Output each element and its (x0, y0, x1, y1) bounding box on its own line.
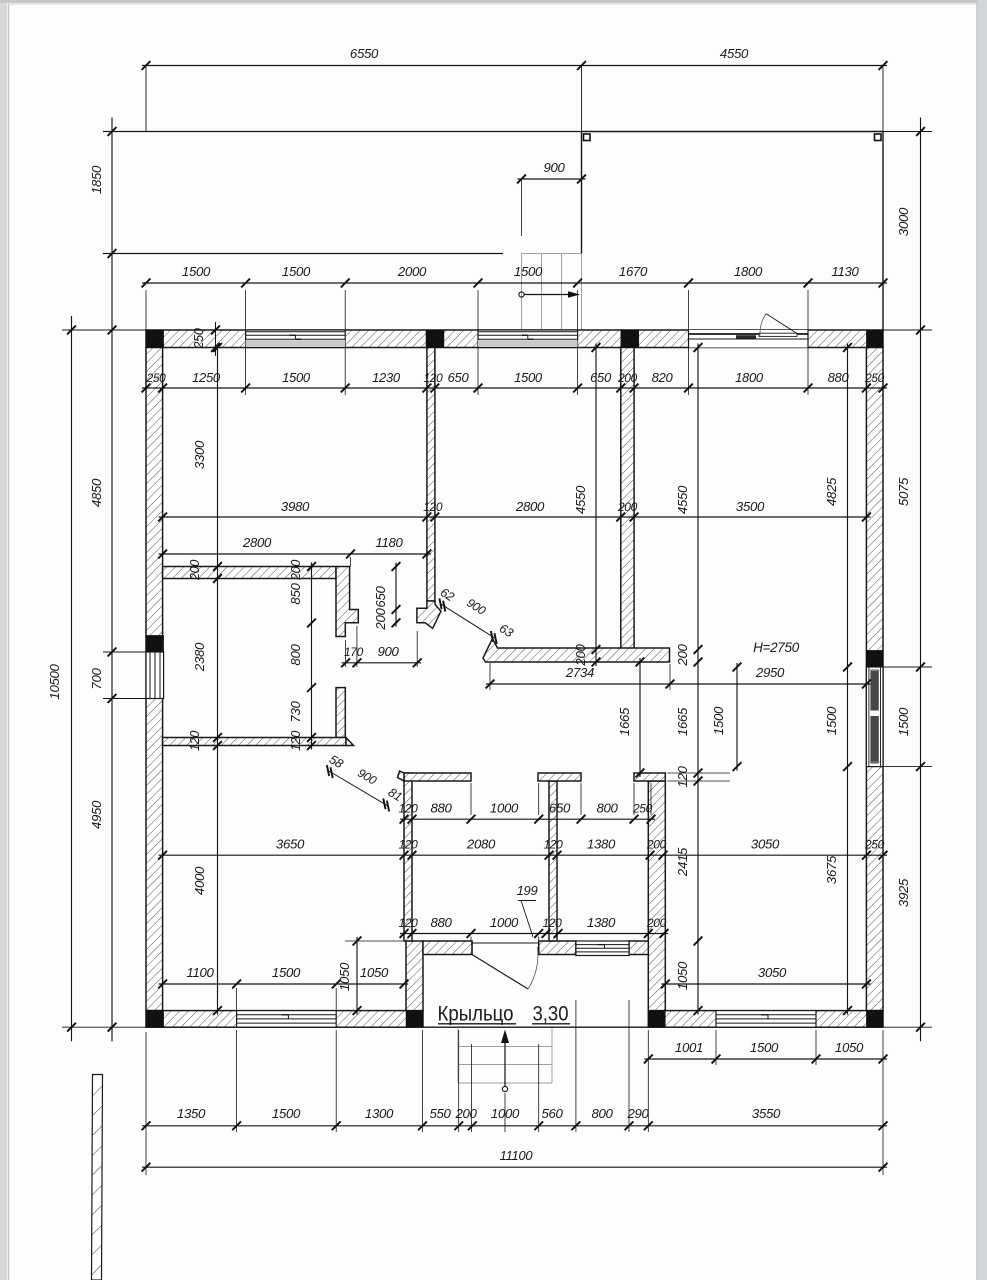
svg-text:4000: 4000 (192, 866, 207, 895)
svg-text:1500: 1500 (272, 1106, 301, 1121)
svg-text:1300: 1300 (365, 1106, 394, 1121)
svg-text:880: 880 (430, 915, 452, 930)
svg-text:Крыльцо: Крыльцо (438, 1002, 514, 1026)
svg-text:120: 120 (289, 731, 303, 751)
svg-text:2734: 2734 (565, 665, 594, 680)
svg-text:200: 200 (188, 560, 202, 581)
svg-text:250: 250 (864, 838, 885, 852)
svg-text:800: 800 (288, 643, 303, 665)
svg-text:650: 650 (373, 585, 388, 607)
svg-text:1665: 1665 (617, 707, 632, 736)
svg-text:550: 550 (429, 1106, 451, 1121)
svg-text:2415: 2415 (675, 847, 690, 877)
svg-text:1001: 1001 (675, 1040, 703, 1055)
svg-text:1250: 1250 (192, 370, 221, 385)
svg-text:1050: 1050 (835, 1040, 864, 1055)
svg-text:700: 700 (89, 667, 104, 689)
svg-text:3050: 3050 (758, 965, 787, 980)
svg-text:1050: 1050 (337, 962, 352, 991)
svg-text:1050: 1050 (360, 965, 389, 980)
svg-text:3980: 3980 (281, 499, 310, 514)
svg-text:3300: 3300 (192, 440, 207, 469)
svg-text:900: 900 (377, 644, 399, 659)
svg-text:1380: 1380 (587, 915, 616, 930)
svg-text:3,30: 3,30 (533, 1002, 569, 1026)
svg-text:200: 200 (675, 643, 690, 666)
svg-text:3925: 3925 (896, 878, 911, 907)
svg-text:1050: 1050 (675, 961, 690, 990)
svg-text:4950: 4950 (89, 800, 104, 829)
svg-text:900: 900 (543, 160, 565, 175)
svg-text:1500: 1500 (282, 264, 311, 279)
svg-text:1500: 1500 (750, 1040, 779, 1055)
svg-text:1130: 1130 (831, 264, 859, 279)
svg-text:800: 800 (596, 801, 618, 816)
svg-text:1380: 1380 (587, 837, 616, 852)
svg-text:4850: 4850 (89, 478, 104, 507)
svg-text:3675: 3675 (824, 855, 839, 884)
svg-text:H=2750: H=2750 (753, 640, 800, 655)
svg-text:880: 880 (828, 370, 850, 385)
svg-text:2380: 2380 (192, 642, 207, 672)
svg-text:1500: 1500 (182, 264, 211, 279)
svg-text:250: 250 (192, 328, 206, 349)
svg-text:5075: 5075 (896, 477, 911, 506)
svg-text:120: 120 (675, 765, 690, 787)
svg-text:11100: 11100 (500, 1148, 534, 1163)
svg-text:200: 200 (289, 560, 303, 581)
svg-text:650: 650 (590, 370, 612, 385)
svg-text:200: 200 (573, 643, 588, 666)
svg-text:730: 730 (288, 700, 303, 722)
svg-text:1670: 1670 (619, 264, 648, 279)
svg-text:120: 120 (188, 731, 202, 751)
svg-text:1500: 1500 (896, 707, 911, 736)
svg-text:200: 200 (646, 838, 667, 852)
svg-text:1180: 1180 (375, 535, 403, 550)
svg-text:4550: 4550 (573, 485, 588, 514)
svg-text:560: 560 (541, 1106, 563, 1121)
svg-text:800: 800 (591, 1106, 613, 1121)
svg-text:4550: 4550 (720, 46, 749, 61)
svg-text:1500: 1500 (272, 965, 301, 980)
svg-text:2800: 2800 (242, 535, 272, 550)
svg-text:10500: 10500 (47, 663, 62, 699)
svg-text:1350: 1350 (177, 1106, 206, 1121)
svg-text:3000: 3000 (896, 207, 911, 236)
svg-text:1800: 1800 (735, 370, 764, 385)
svg-text:650: 650 (549, 801, 571, 816)
svg-text:200: 200 (617, 500, 638, 514)
svg-text:120: 120 (398, 802, 418, 816)
svg-text:1500: 1500 (711, 706, 726, 735)
svg-text:4825: 4825 (824, 477, 839, 506)
svg-text:650: 650 (448, 370, 470, 385)
svg-text:1000: 1000 (490, 915, 519, 930)
svg-text:1000: 1000 (491, 1106, 520, 1121)
svg-text:2000: 2000 (397, 264, 427, 279)
svg-text:120: 120 (423, 500, 443, 514)
svg-text:1500: 1500 (514, 370, 543, 385)
svg-text:1500: 1500 (824, 706, 839, 735)
svg-text:1100: 1100 (186, 965, 214, 980)
svg-text:3500: 3500 (736, 499, 765, 514)
svg-text:1000: 1000 (490, 801, 519, 816)
svg-text:3050: 3050 (751, 837, 780, 852)
svg-text:250: 250 (864, 371, 885, 385)
svg-text:200: 200 (617, 371, 638, 385)
svg-text:1230: 1230 (372, 370, 401, 385)
svg-text:2800: 2800 (515, 499, 545, 514)
svg-text:6550: 6550 (350, 46, 379, 61)
svg-text:880: 880 (430, 801, 452, 816)
svg-text:2950: 2950 (755, 665, 785, 680)
svg-text:290: 290 (626, 1106, 649, 1121)
svg-text:1500: 1500 (514, 264, 543, 279)
svg-text:170: 170 (344, 645, 364, 659)
svg-text:3550: 3550 (752, 1106, 781, 1121)
svg-text:200: 200 (373, 607, 388, 630)
svg-text:3650: 3650 (276, 837, 305, 852)
svg-text:120: 120 (542, 916, 562, 930)
svg-text:199: 199 (517, 883, 538, 898)
svg-text:200: 200 (454, 1106, 477, 1121)
svg-text:250: 250 (632, 802, 653, 816)
svg-text:1665: 1665 (675, 707, 690, 736)
svg-text:1800: 1800 (734, 264, 763, 279)
svg-text:200: 200 (646, 916, 667, 930)
svg-text:2080: 2080 (466, 837, 496, 852)
svg-text:1500: 1500 (282, 370, 311, 385)
svg-text:4550: 4550 (675, 485, 690, 514)
svg-text:120: 120 (398, 838, 418, 852)
svg-text:120: 120 (543, 838, 563, 852)
svg-text:820: 820 (652, 370, 674, 385)
svg-text:850: 850 (288, 582, 303, 604)
svg-text:1850: 1850 (89, 165, 104, 194)
svg-text:120: 120 (398, 916, 418, 930)
svg-text:250: 250 (146, 371, 167, 385)
